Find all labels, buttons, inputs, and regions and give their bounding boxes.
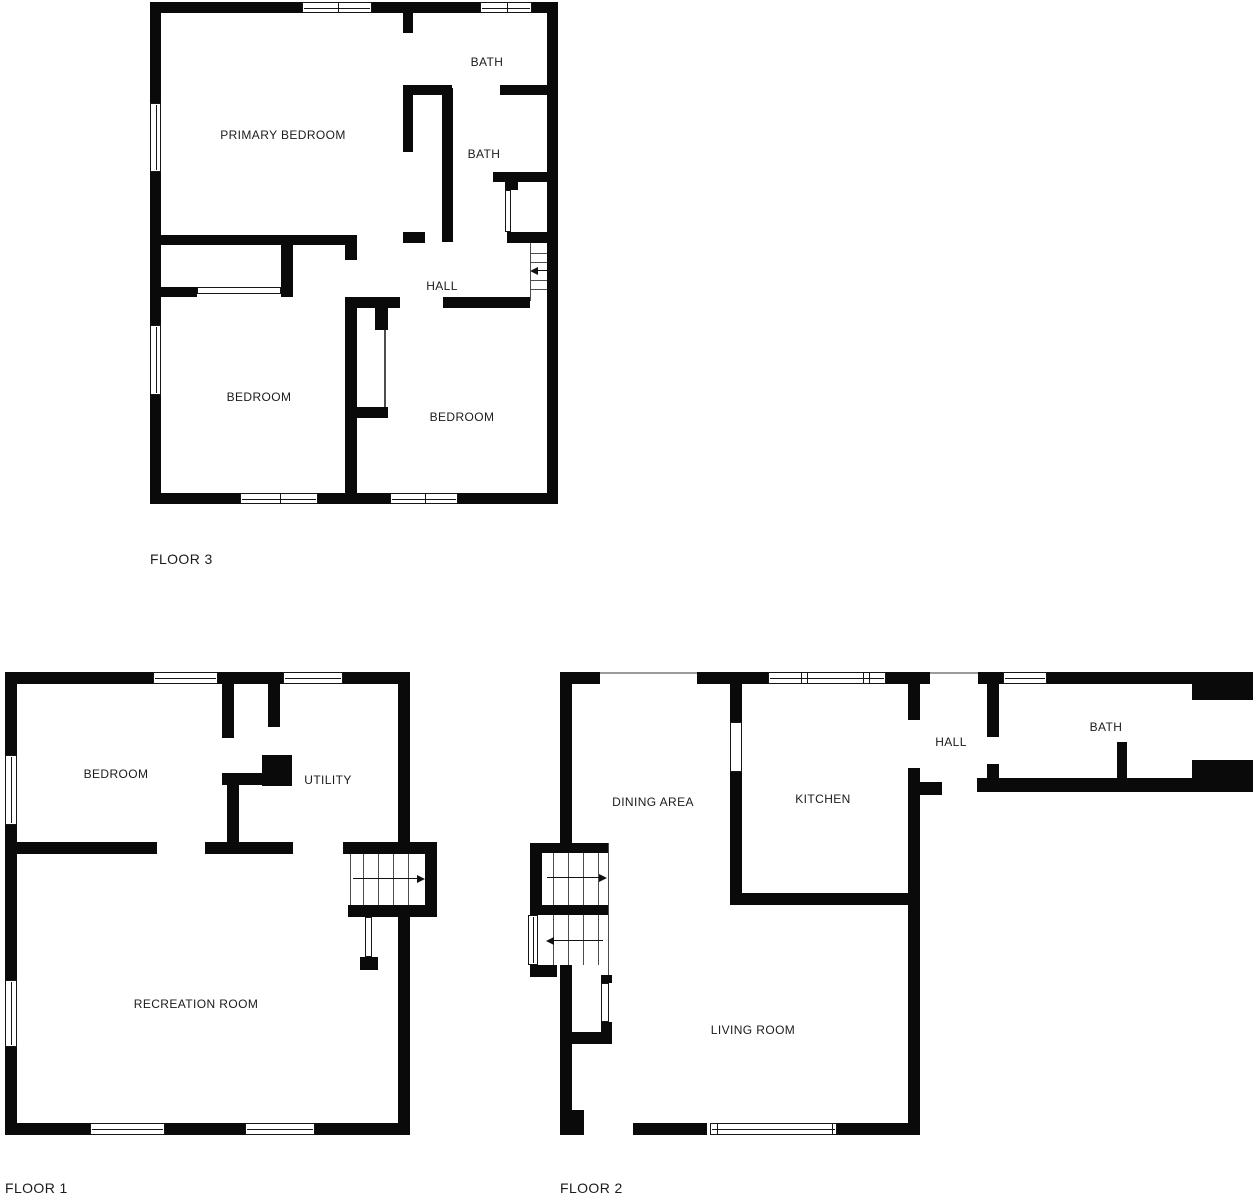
wall-segment <box>403 232 425 243</box>
room-label-hall-f3: HALL <box>426 279 458 293</box>
window <box>768 672 886 684</box>
floor-label-1: FLOOR 1 <box>5 1180 68 1196</box>
wall-segment <box>343 842 437 854</box>
wall-segment <box>730 893 920 905</box>
window-pane-line <box>392 499 456 500</box>
room-label-bath-f2: BATH <box>1090 720 1123 734</box>
stair-arrow-shaft <box>554 940 603 941</box>
wall-segment <box>530 965 557 977</box>
stair-arrow-shaft <box>547 877 599 878</box>
window <box>5 755 17 825</box>
window-pane-line <box>533 917 534 963</box>
room-label-bath-lower: BATH <box>468 147 501 161</box>
window <box>302 2 372 13</box>
wall-segment <box>560 672 572 843</box>
wall-segment <box>493 172 547 182</box>
wall-segment <box>987 684 999 737</box>
window-pane-line <box>155 678 216 679</box>
wall-segment <box>505 180 518 190</box>
wall-segment <box>403 95 413 152</box>
wall-segment <box>633 1123 707 1135</box>
wall-segment <box>697 672 768 684</box>
stair-arrow-head <box>599 874 607 882</box>
stair-tread <box>608 843 609 975</box>
window <box>150 103 161 172</box>
room-label-dining-area: DINING AREA <box>612 795 694 809</box>
wall-segment <box>375 308 388 330</box>
stair-arrow-head <box>546 937 554 945</box>
wall-segment <box>227 785 239 842</box>
stair-tread <box>553 853 554 905</box>
wall-segment <box>150 493 558 504</box>
room-label-bedroom-f1: BEDROOM <box>84 767 149 781</box>
wall-segment <box>442 88 453 242</box>
wall-segment <box>398 672 410 854</box>
wall-segment <box>1117 742 1127 780</box>
window-pane-line <box>156 327 157 393</box>
window-mullion <box>863 673 864 683</box>
wall-segment <box>908 768 920 1135</box>
window-pane-line <box>242 499 316 500</box>
stair-tread <box>408 854 409 905</box>
wall-segment <box>262 755 292 786</box>
wall-segment <box>500 85 547 95</box>
stair-tread <box>393 854 394 905</box>
window <box>1003 672 1047 684</box>
room-label-living-room: LIVING ROOM <box>711 1023 795 1037</box>
door-leaf <box>505 190 511 232</box>
wall-segment <box>530 905 608 915</box>
window-pane-line <box>770 678 884 679</box>
window <box>390 493 458 504</box>
stair-arrow-head <box>417 875 425 883</box>
window-mullion <box>425 494 426 503</box>
room-label-hall-f2: HALL <box>935 735 967 749</box>
wall-segment <box>5 672 17 1135</box>
wall-segment <box>222 773 262 785</box>
wall-segment <box>5 842 157 854</box>
wall-segment <box>150 235 357 245</box>
window <box>480 2 532 13</box>
door-leaf <box>197 287 281 294</box>
wall-segment <box>572 1032 612 1044</box>
window <box>150 325 161 395</box>
wall-segment <box>345 297 357 493</box>
stair-arrow-head <box>530 267 538 275</box>
wall-segment <box>987 764 999 782</box>
door-leaf <box>365 917 372 957</box>
room-label-bath-upper: BATH <box>471 55 504 69</box>
window <box>245 1123 315 1135</box>
room-label-utility: UTILITY <box>304 773 351 787</box>
wall-segment <box>150 287 197 297</box>
wall-segment <box>348 905 437 917</box>
window <box>153 672 218 684</box>
wall-segment <box>281 245 293 297</box>
window-pane-line <box>1005 678 1045 679</box>
closet-partition-line <box>384 330 386 407</box>
stair-tread <box>568 853 569 905</box>
window-pane-line <box>482 8 530 9</box>
wall-segment <box>977 778 1253 792</box>
floor-plan-canvas: PRIMARY BEDROOM BATH BATH HALL BEDROOM B… <box>0 0 1253 1198</box>
window <box>528 915 538 965</box>
stair-tread <box>378 854 379 905</box>
window-mullion <box>801 673 802 683</box>
room-label-primary-bedroom: PRIMARY BEDROOM <box>220 128 346 142</box>
wall-segment <box>547 2 558 504</box>
wall-segment <box>345 245 357 260</box>
wall-segment <box>730 684 742 722</box>
wall-segment <box>1192 672 1253 700</box>
stair-tread <box>530 280 547 281</box>
wall-segment <box>360 957 378 970</box>
room-label-recreation: RECREATION ROOM <box>134 997 258 1011</box>
wall-segment <box>530 843 608 853</box>
wall-segment <box>268 684 280 727</box>
window-pane-line <box>92 1129 163 1130</box>
wall-segment <box>150 2 161 504</box>
opening-line <box>930 672 978 674</box>
stair-tread <box>530 253 547 254</box>
window <box>283 672 343 684</box>
door-leaf <box>730 722 742 772</box>
wall-segment <box>398 917 410 1135</box>
wall-segment <box>530 853 542 905</box>
window-mullion <box>869 673 870 683</box>
window-pane-line <box>712 1129 835 1130</box>
wall-segment <box>443 297 530 308</box>
wall-segment <box>601 1022 612 1032</box>
stair-tread <box>530 262 547 263</box>
door-leaf <box>601 983 609 1022</box>
floor-label-2: FLOOR 2 <box>560 1180 623 1196</box>
room-label-bedroom-right: BEDROOM <box>430 410 495 424</box>
window-pane-line <box>156 105 157 170</box>
room-label-kitchen: KITCHEN <box>795 792 850 806</box>
window <box>90 1123 165 1135</box>
wall-segment <box>886 672 930 684</box>
wall-segment <box>908 684 920 720</box>
stair-tread <box>583 853 584 905</box>
wall-segment <box>507 232 547 243</box>
window-mullion <box>280 494 281 503</box>
wall-segment <box>730 772 742 893</box>
wall-segment <box>920 782 942 795</box>
stair-tread <box>350 854 351 905</box>
window-mullion <box>717 1124 718 1134</box>
floor-label-3: FLOOR 3 <box>150 551 213 567</box>
wall-segment <box>403 13 413 33</box>
stair-arrow-shaft <box>538 270 547 271</box>
stair-tread <box>363 854 364 905</box>
window-pane-line <box>11 757 12 823</box>
wall-segment <box>222 684 234 738</box>
opening-line <box>600 672 697 674</box>
wall-segment <box>205 842 293 854</box>
window-pane-line <box>247 1129 313 1130</box>
wall-segment <box>601 975 612 983</box>
window <box>240 493 318 504</box>
wall-segment <box>5 1123 410 1135</box>
window-mullion <box>507 3 508 12</box>
wall-segment <box>560 1110 584 1135</box>
window-mullion <box>807 673 808 683</box>
stair-tread <box>530 289 547 290</box>
window-pane-line <box>304 8 370 9</box>
wall-segment <box>837 1123 920 1135</box>
room-label-bedroom-left: BEDROOM <box>227 390 292 404</box>
window <box>710 1123 837 1135</box>
window-pane-line <box>285 678 341 679</box>
window-mullion <box>338 3 339 12</box>
stair-arrow-shaft <box>353 878 417 879</box>
window <box>5 980 17 1047</box>
window-pane-line <box>11 982 12 1045</box>
window-mullion <box>832 1124 833 1134</box>
